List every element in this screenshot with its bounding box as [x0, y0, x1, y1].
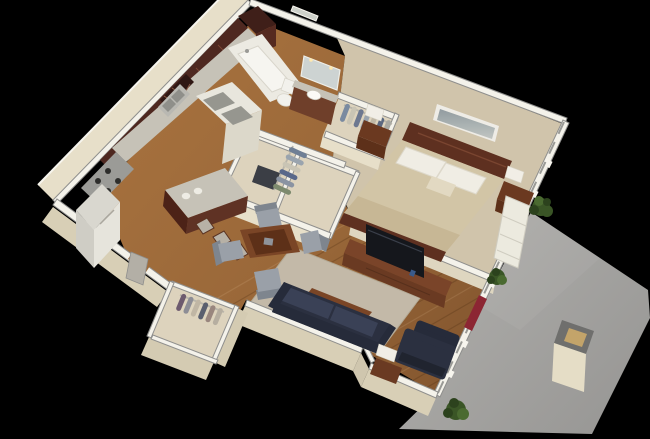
- vanity-light: [309, 58, 313, 62]
- vanity-light: [329, 66, 333, 70]
- floorplan-canvas: [0, 0, 650, 439]
- table-centerpiece: [263, 237, 273, 245]
- floorplan-render: [0, 0, 650, 439]
- dining-table: [240, 224, 300, 258]
- tub-faucet: [245, 49, 249, 53]
- canister: [182, 193, 191, 200]
- canister: [194, 188, 203, 195]
